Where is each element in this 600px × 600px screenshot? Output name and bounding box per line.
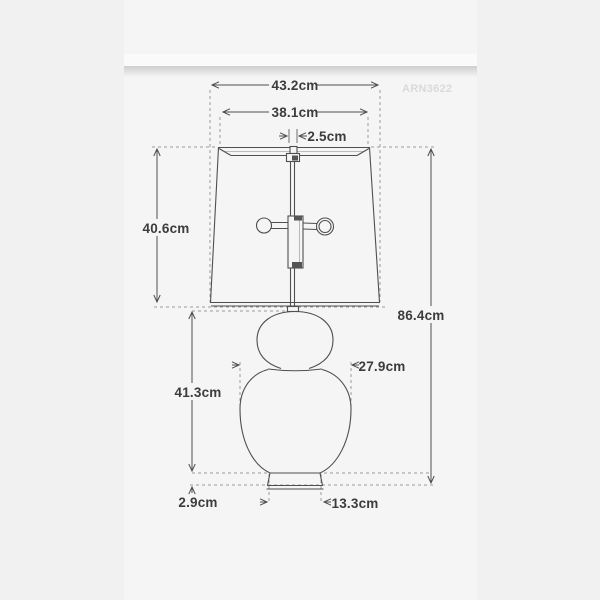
product-dimension-page: 43.2cm 38.1cm 2.5cm 40.6cm 86.4cm 41.3cm… <box>0 0 600 600</box>
dimension-label-shade-top-width: 38.1cm <box>272 105 319 120</box>
dimension-label-base-width: 13.3cm <box>332 496 379 511</box>
lamp-body-upper-gourd <box>257 312 333 371</box>
lamp-body-lower-gourd <box>240 370 351 474</box>
dimension-label-shade-bottom-width: 43.2cm <box>272 78 319 93</box>
lamp-base <box>267 473 324 489</box>
lamp-finial-rod <box>287 147 300 217</box>
lamp-socket <box>257 216 334 312</box>
dimension-label-body-width: 27.9cm <box>359 359 406 374</box>
dimension-label-body-height: 41.3cm <box>175 385 222 400</box>
dimension-label-shade-height: 40.6cm <box>143 221 190 236</box>
watermark-sku: ARN3622 <box>402 83 452 95</box>
lamp-left-knob <box>257 218 272 233</box>
lamp-drawing <box>211 147 380 490</box>
dimension-label-neck-width: 2.5cm <box>307 129 346 144</box>
lamp-dimension-diagram: 43.2cm 38.1cm 2.5cm 40.6cm 86.4cm 41.3cm… <box>0 0 600 600</box>
dimension-label-base-height: 2.9cm <box>178 495 217 510</box>
dimension-label-overall-height: 86.4cm <box>398 308 445 323</box>
